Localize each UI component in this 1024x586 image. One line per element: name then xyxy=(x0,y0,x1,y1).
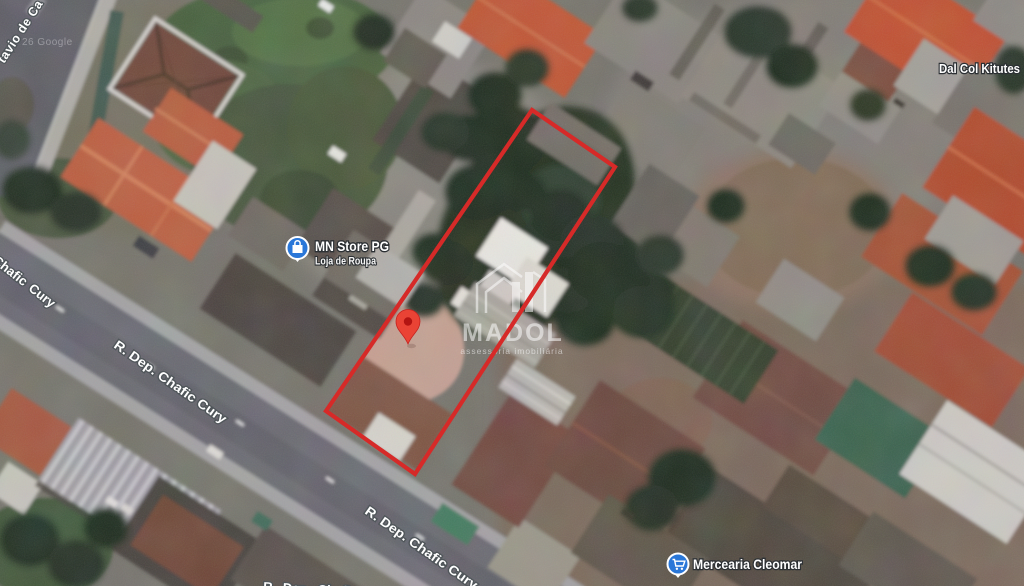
svg-text:Loja de Roupa: Loja de Roupa xyxy=(315,256,377,268)
svg-text:assessoria imobiliária: assessoria imobiliária xyxy=(460,346,563,356)
svg-text:26 Google: 26 Google xyxy=(22,37,73,48)
svg-text:Mercearia Cleomar: Mercearia Cleomar xyxy=(693,557,803,572)
svg-text:Dal Col Kitutes: Dal Col Kitutes xyxy=(939,61,1020,76)
svg-text:MN Store PG: MN Store PG xyxy=(315,238,389,254)
